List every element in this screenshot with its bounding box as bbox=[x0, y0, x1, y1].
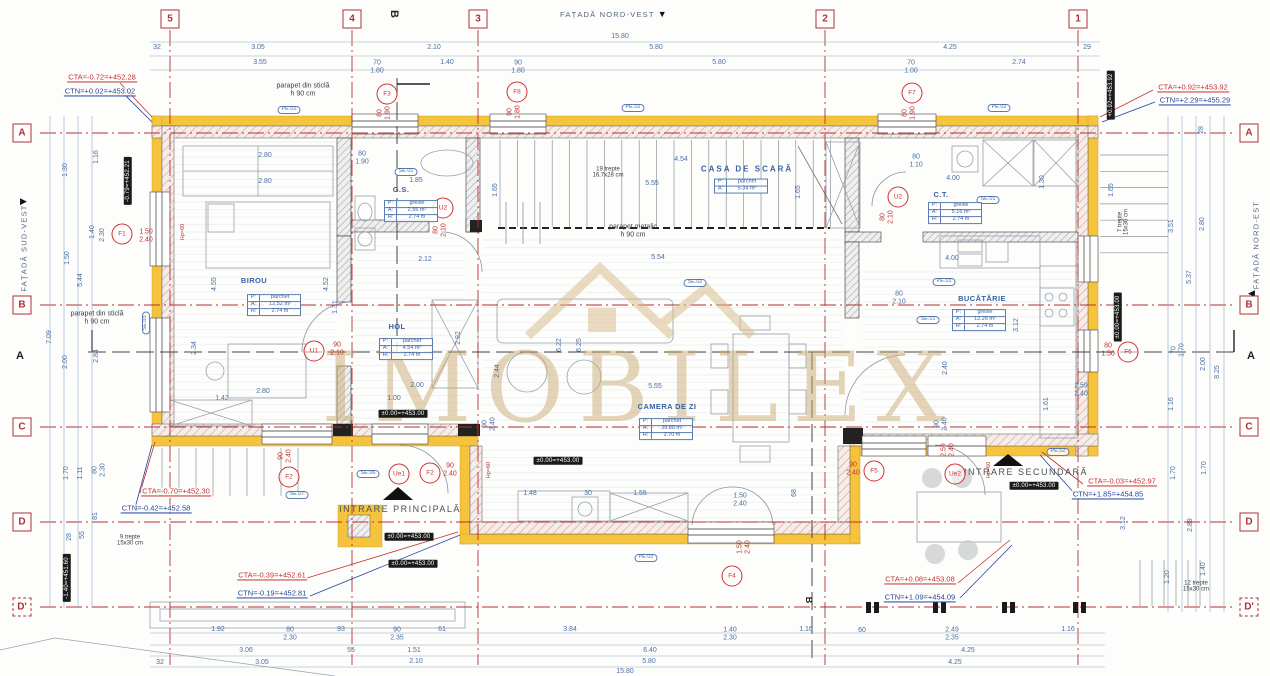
opening-mark-f5: F5 bbox=[864, 461, 885, 482]
section-a-right: A bbox=[1247, 350, 1255, 362]
grid-bubble-4: 4 bbox=[343, 10, 362, 29]
opening-mark-f8: F8 bbox=[507, 82, 528, 103]
entrance-principal-label: INTRARE PRINCIPALĂ bbox=[339, 504, 461, 514]
opening-mark-f2: F2 bbox=[279, 467, 300, 488]
opening-mark-f4: F4 bbox=[722, 566, 743, 587]
opening-mark-u2: U2 bbox=[433, 198, 454, 219]
grid-bubble-5: 5 bbox=[161, 10, 180, 29]
grid-bubble-A: A bbox=[1240, 124, 1259, 143]
opening-mark-ue2: Ue2 bbox=[945, 464, 966, 485]
opening-mark-f1: F1 bbox=[112, 224, 133, 245]
terrace-outline bbox=[0, 602, 465, 676]
opening-mark-u1: U1 bbox=[304, 341, 325, 362]
interior-walls bbox=[337, 138, 1078, 424]
opening-mark-u2: U2 bbox=[888, 187, 909, 208]
grid-bubble-B: B bbox=[1240, 296, 1259, 315]
floor-plan-canvas: IMOBILEX FAȚADĂ NORD-VEST ▼ FAȚADĂ SUD-V… bbox=[0, 0, 1270, 676]
grid-bubble-D: D bbox=[1240, 513, 1259, 532]
grid-bubble-C: C bbox=[1240, 418, 1259, 437]
opening-mark-ue1: Ue1 bbox=[389, 464, 410, 485]
grid-bubble-B: B bbox=[13, 296, 32, 315]
stairs bbox=[498, 146, 842, 244]
entrance-secundar-label: INTRARE SECUNDARĂ bbox=[964, 467, 1088, 477]
section-b-top: B bbox=[388, 10, 400, 18]
grid-bubble-A: A bbox=[13, 124, 32, 143]
opening-mark-f7: F7 bbox=[902, 83, 923, 104]
section-a-left: A bbox=[16, 350, 24, 362]
grid-bubble-1: 1 bbox=[1069, 10, 1088, 29]
grid-bubble-D: D bbox=[13, 513, 32, 532]
grid-bubble-3: 3 bbox=[469, 10, 488, 29]
opening-mark-f2: F2 bbox=[420, 463, 441, 484]
grid-bubble-C: C bbox=[13, 418, 32, 437]
grid-bubble-2: 2 bbox=[816, 10, 835, 29]
opening-mark-f3: F3 bbox=[377, 84, 398, 105]
fence-posts bbox=[866, 602, 1086, 613]
grid-bubble-D': D' bbox=[1240, 598, 1259, 617]
watermark-logo bbox=[528, 268, 752, 336]
furniture bbox=[170, 140, 1078, 542]
grid-bubble-D': D' bbox=[13, 598, 32, 617]
section-lines bbox=[88, 78, 1240, 662]
section-b-bottom: B bbox=[804, 597, 814, 604]
opening-mark-f6: F6 bbox=[1118, 342, 1139, 363]
plan-drawing bbox=[0, 0, 1270, 676]
